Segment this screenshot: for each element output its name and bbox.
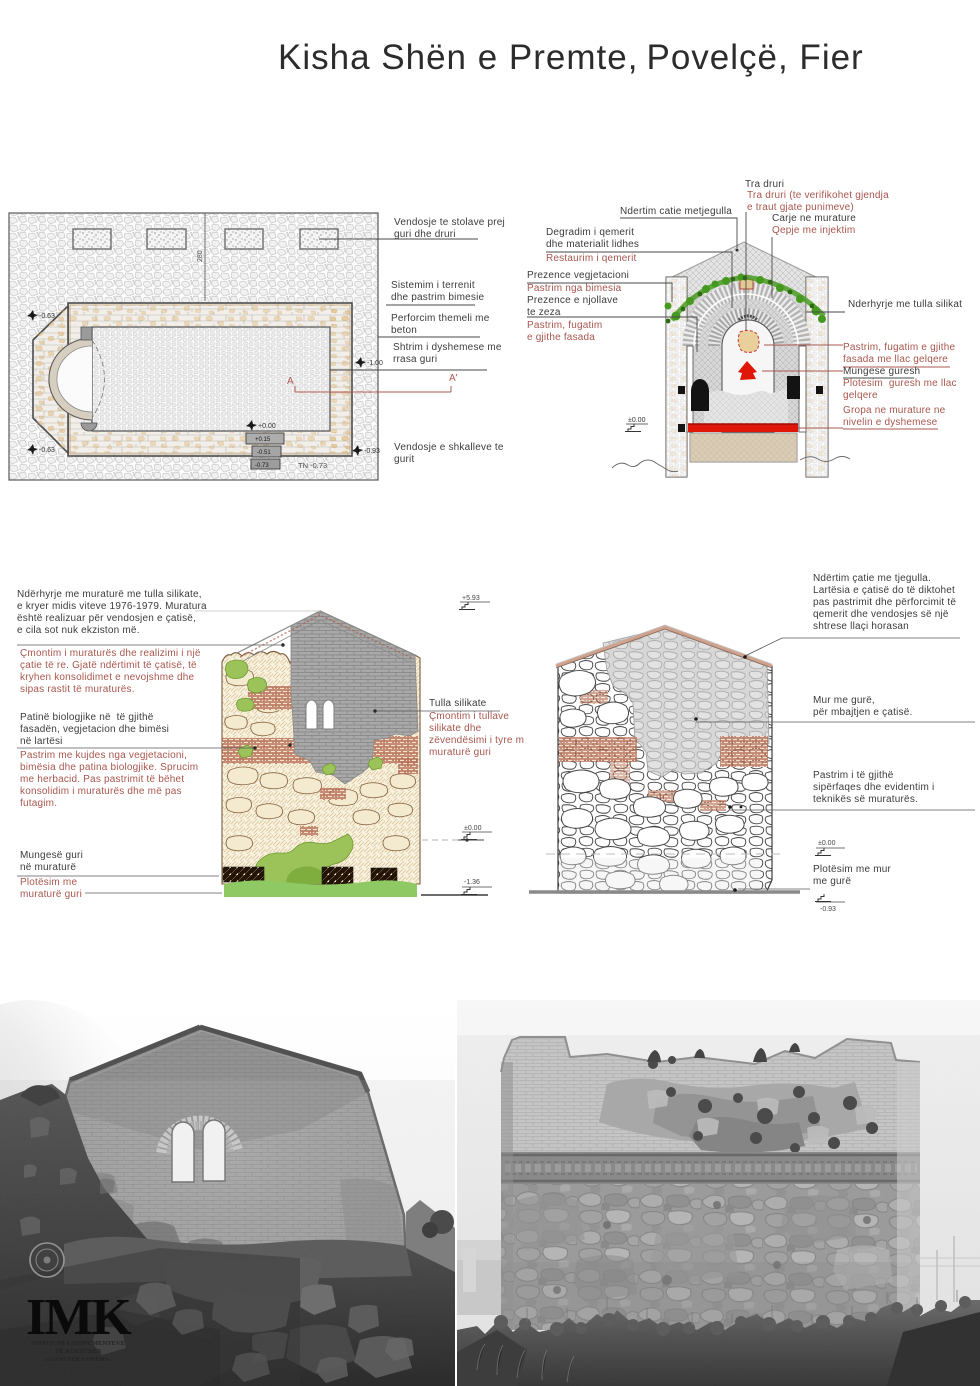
svg-text:±0.00: ±0.00 — [464, 825, 482, 832]
svg-text:A': A' — [449, 373, 458, 384]
svg-text:280: 280 — [197, 250, 204, 262]
svg-text:+5.93: +5.93 — [462, 595, 480, 602]
svg-text:TË KULTURËS: TË KULTURËS — [55, 1348, 101, 1355]
svg-text:TN -0.73: TN -0.73 — [298, 461, 327, 470]
svg-text:±0.00: ±0.00 — [818, 840, 836, 847]
svg-text:IMK: IMK — [26, 1289, 132, 1346]
svg-text:-0.51: -0.51 — [257, 450, 271, 456]
svg-text:A: A — [287, 376, 294, 387]
svg-text:-0.93: -0.93 — [820, 906, 836, 913]
svg-text:-0.63: -0.63 — [39, 447, 55, 454]
svg-text:+0.15: +0.15 — [255, 437, 271, 443]
svg-text:-0.93: -0.93 — [364, 448, 380, 455]
svg-text:±0.00: ±0.00 — [628, 417, 646, 424]
svg-text:-0.73: -0.73 — [255, 463, 269, 469]
svg-text:«GANI STRAZIMIRI»: «GANI STRAZIMIRI» — [45, 1356, 111, 1363]
svg-text:+0.00: +0.00 — [258, 423, 276, 430]
svg-text:INSTITUTI I MONUMENTEVE: INSTITUTI I MONUMENTEVE — [31, 1340, 126, 1347]
svg-text:-0.63: -0.63 — [39, 313, 55, 320]
svg-text:-1.00: -1.00 — [367, 360, 383, 367]
svg-text:-1.36: -1.36 — [464, 879, 480, 886]
